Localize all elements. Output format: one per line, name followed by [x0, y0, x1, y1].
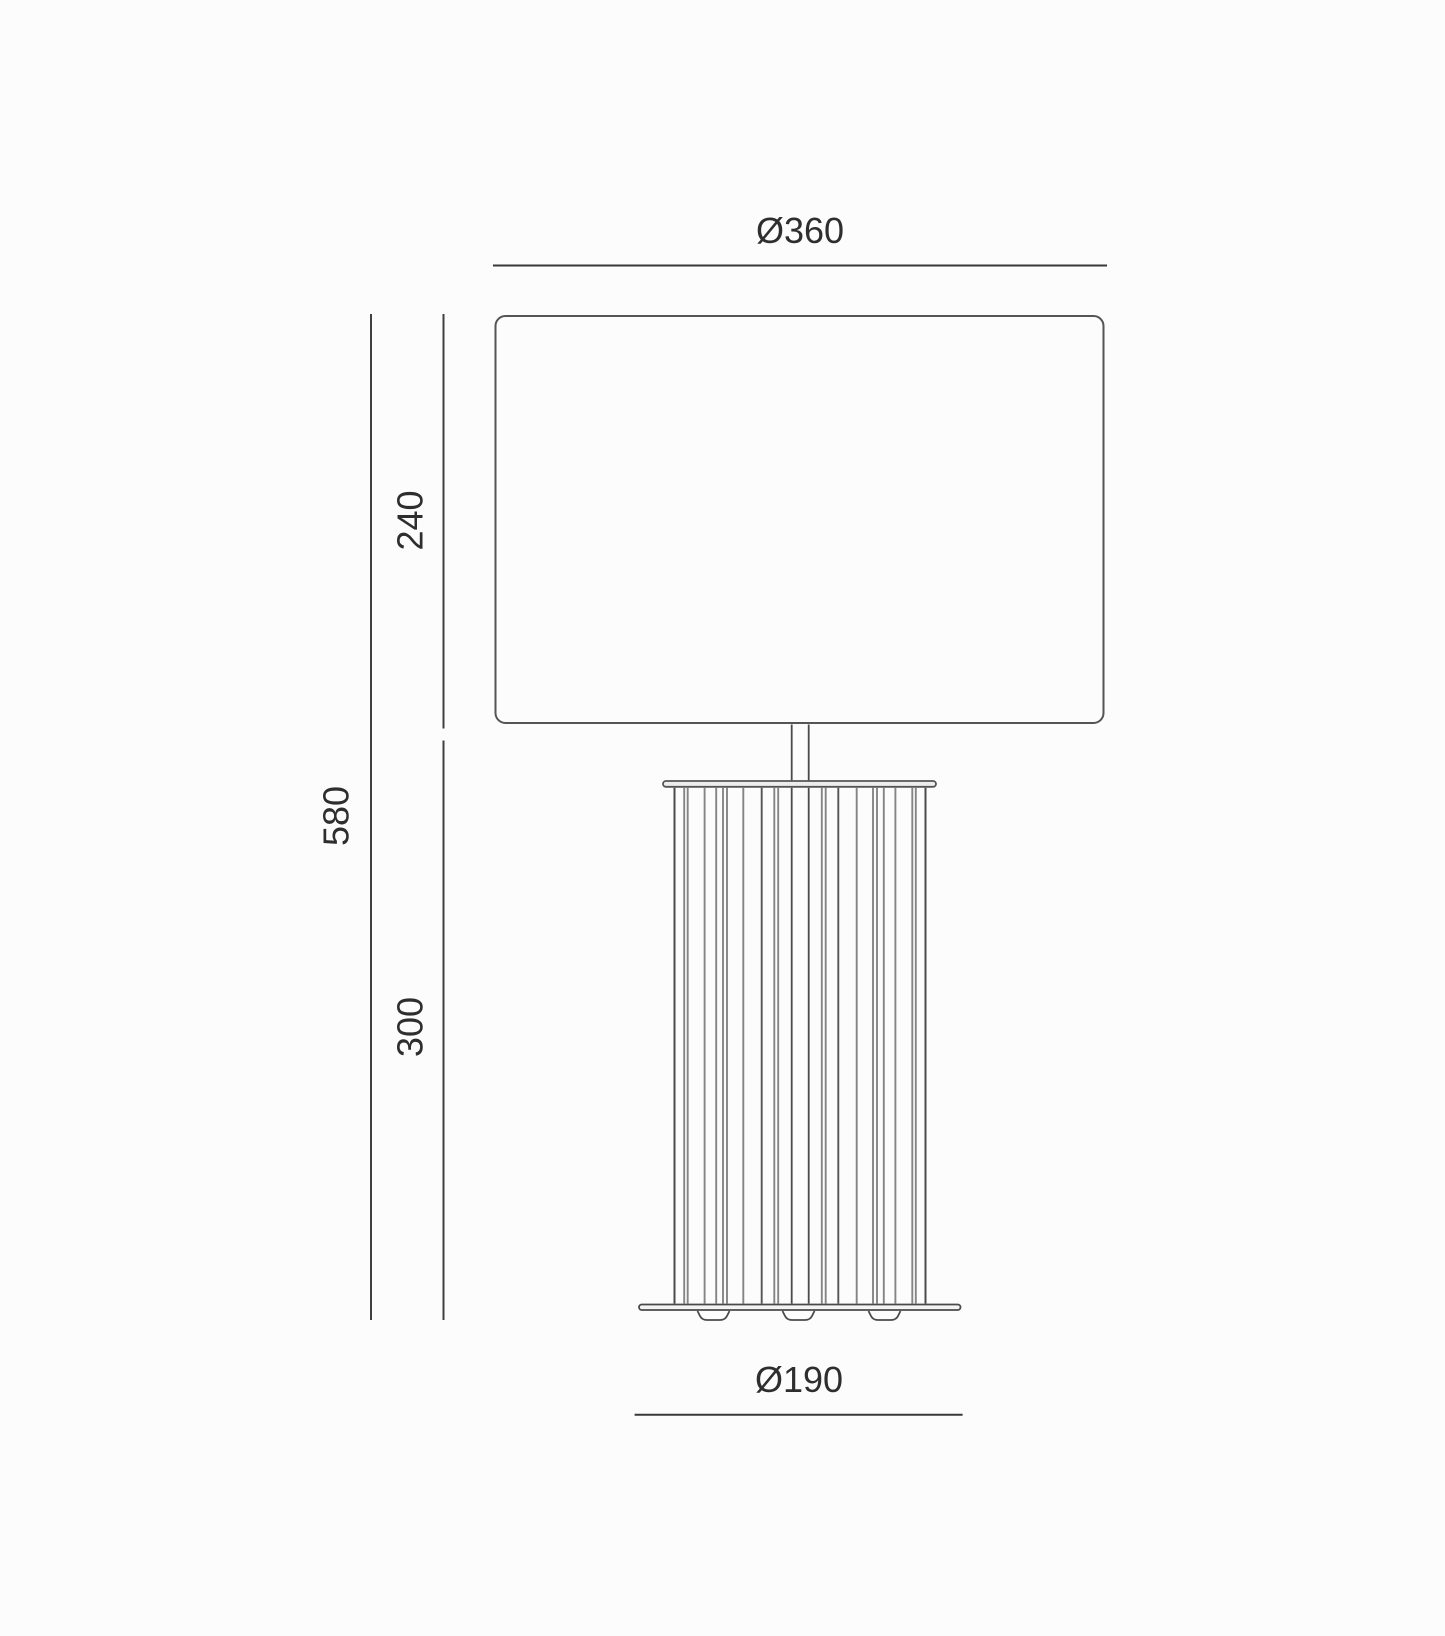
svg-text:300: 300 [390, 997, 431, 1057]
svg-text:Ø360: Ø360 [756, 210, 844, 251]
svg-text:580: 580 [316, 786, 357, 846]
svg-text:240: 240 [390, 490, 431, 550]
svg-text:Ø190: Ø190 [755, 1359, 843, 1400]
